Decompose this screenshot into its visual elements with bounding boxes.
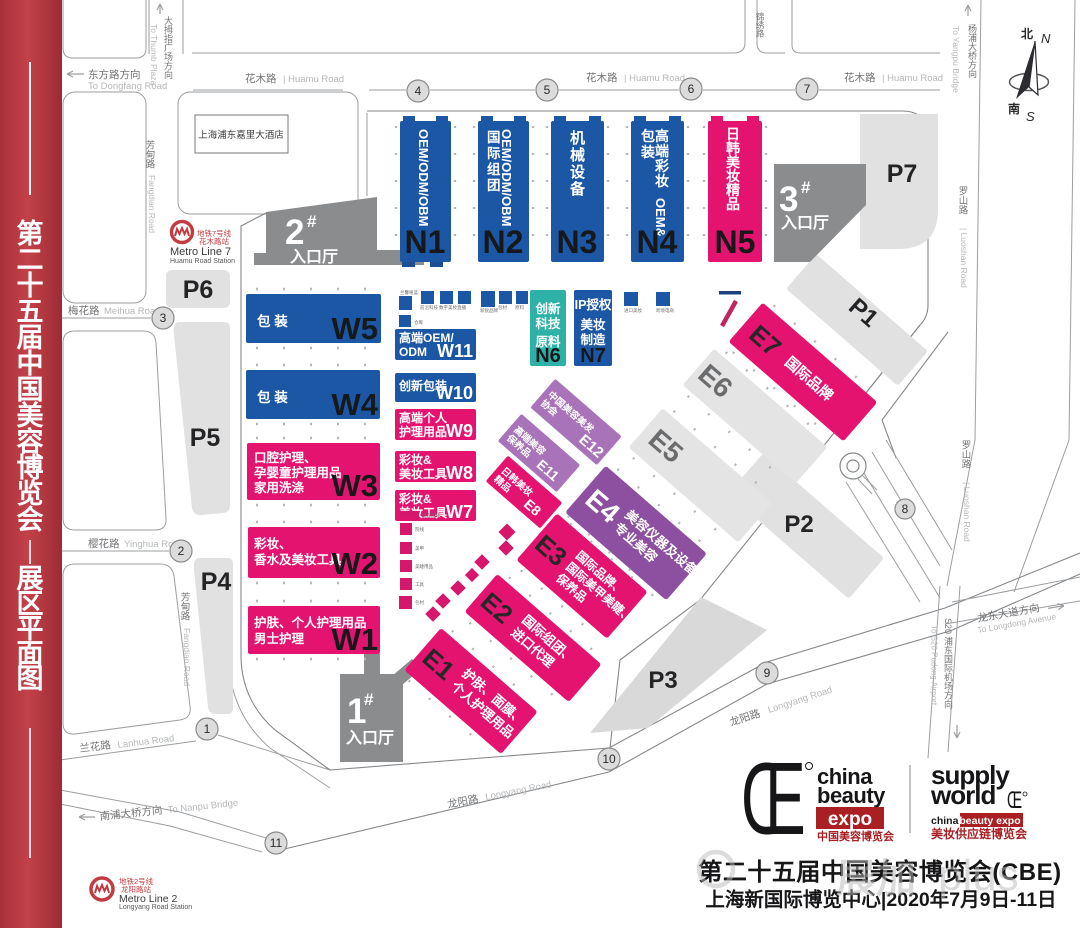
svg-text:W9: W9 xyxy=(446,421,473,441)
svg-text:#: # xyxy=(364,690,374,709)
svg-text:包 装: 包 装 xyxy=(257,313,288,329)
svg-text:美妆工具: 美妆工具 xyxy=(399,466,447,481)
svg-text:高端彩妆: 高端彩妆 xyxy=(654,128,669,189)
svg-text:东方路方向: 东方路方向 xyxy=(88,68,141,81)
svg-text:9: 9 xyxy=(764,666,771,680)
svg-text:护理用品: 护理用品 xyxy=(399,424,447,439)
svg-text:芳甸路: 芳甸路 xyxy=(144,139,156,169)
svg-text:家用洗涤: 家用洗涤 xyxy=(254,480,305,495)
svg-text:美妆供应链博览会: 美妆供应链博览会 xyxy=(931,826,1028,841)
svg-text:N3: N3 xyxy=(557,224,598,260)
svg-text:入口厅: 入口厅 xyxy=(290,248,338,266)
svg-text:口腔护理、: 口腔护理、 xyxy=(254,450,317,465)
svg-text:To S20 Pudong Airport: To S20 Pudong Airport xyxy=(930,625,939,706)
svg-text:创新: 创新 xyxy=(534,301,561,316)
svg-text:入口厅: 入口厅 xyxy=(346,729,394,747)
svg-text:N6: N6 xyxy=(535,345,561,367)
svg-text:原料: 原料 xyxy=(515,304,524,311)
svg-text:3: 3 xyxy=(779,180,798,219)
svg-text:6: 6 xyxy=(688,82,695,96)
svg-text:expo: expo xyxy=(828,809,872,830)
svg-text:IP授权: IP授权 xyxy=(575,297,612,312)
svg-text:美妆: 美妆 xyxy=(580,317,606,332)
svg-text:包材: 包材 xyxy=(498,304,507,310)
svg-text:N1: N1 xyxy=(405,224,446,260)
svg-text:美睫用品: 美睫用品 xyxy=(415,563,433,570)
svg-text:5: 5 xyxy=(544,83,551,97)
svg-text:兰馨格蓝: 兰馨格蓝 xyxy=(400,289,418,296)
svg-text:P2: P2 xyxy=(784,511,813,538)
svg-text:W7: W7 xyxy=(446,502,473,522)
svg-text:花木路站: 花木路站 xyxy=(199,236,229,246)
svg-text:W8: W8 xyxy=(446,463,473,483)
svg-text:彩妆&: 彩妆& xyxy=(398,491,432,506)
svg-text:P6: P6 xyxy=(183,276,214,304)
svg-text:孕婴童护理用品: 孕婴童护理用品 xyxy=(254,465,342,480)
svg-text:彩妆、: 彩妆、 xyxy=(253,536,292,551)
svg-text:包 装: 包 装 xyxy=(257,389,288,405)
svg-text:| Luoshan Road: | Luoshan Road xyxy=(962,482,972,542)
svg-text:Metro Line 7: Metro Line 7 xyxy=(170,246,231,258)
svg-text:W5: W5 xyxy=(332,311,379,346)
svg-text:北: 北 xyxy=(1021,26,1033,41)
svg-text:花木路: 花木路 xyxy=(586,71,618,84)
svg-text:美甲: 美甲 xyxy=(415,545,424,552)
svg-text:1: 1 xyxy=(204,722,211,736)
svg-text:world: world xyxy=(930,780,995,810)
svg-text:罗山路: 罗山路 xyxy=(960,440,972,469)
svg-text:| Huamu Road: | Huamu Road xyxy=(882,73,943,84)
svg-text:N: N xyxy=(1041,31,1051,46)
svg-text:OEM/ODM/OBM: OEM/ODM/OBM xyxy=(416,129,431,227)
svg-text:beauty expo: beauty expo xyxy=(959,815,1020,827)
svg-text:男士护理: 男士护理 xyxy=(254,631,305,646)
svg-text:P4: P4 xyxy=(201,568,232,596)
svg-text:N7: N7 xyxy=(580,345,606,367)
svg-text:Longyang Road Station: Longyang Road Station xyxy=(119,904,192,911)
svg-text:罗山路: 罗山路 xyxy=(957,186,969,215)
svg-text:4: 4 xyxy=(415,84,422,98)
svg-text:展区平面图: 展区平面图 xyxy=(17,564,44,694)
svg-text:进口美妆: 进口美妆 xyxy=(624,307,642,314)
svg-text:直播: 直播 xyxy=(457,304,466,311)
svg-text:香水及美妆工具: 香水及美妆工具 xyxy=(253,552,342,567)
svg-text:锦绣路: 锦绣路 xyxy=(755,11,765,38)
svg-text:展加: 展加 xyxy=(836,857,916,901)
svg-text:仓库: 仓库 xyxy=(414,319,423,326)
svg-text:花木路: 花木路 xyxy=(844,71,876,84)
svg-text:Fangdian Road: Fangdian Road xyxy=(182,628,192,686)
svg-text:芳甸路: 芳甸路 xyxy=(179,591,191,621)
svg-text:11: 11 xyxy=(270,836,283,850)
svg-text:跨境电商: 跨境电商 xyxy=(656,307,674,314)
svg-text:3: 3 xyxy=(160,311,167,325)
svg-text:N5: N5 xyxy=(715,224,756,260)
svg-text:第二十五届中国美容博览会: 第二十五届中国美容博览会 xyxy=(17,218,44,535)
svg-text:梅花路: 梅花路 xyxy=(68,304,100,317)
svg-text:beauty: beauty xyxy=(817,783,886,808)
svg-text:2: 2 xyxy=(285,213,304,252)
svg-text:南: 南 xyxy=(1008,101,1020,116)
svg-text:S: S xyxy=(1026,109,1035,124)
svg-text:S20 浦东国际机场方向: S20 浦东国际机场方向 xyxy=(943,618,953,709)
svg-text:china: china xyxy=(931,815,959,827)
svg-text:花木路: 花木路 xyxy=(245,72,277,85)
svg-text:前沿科技: 前沿科技 xyxy=(420,304,438,311)
svg-text:#: # xyxy=(801,178,811,197)
svg-text:To Yangpu Bridge: To Yangpu Bridge xyxy=(951,26,961,93)
svg-text:樱花路: 樱花路 xyxy=(88,537,120,550)
svg-text:机械设备: 机械设备 xyxy=(569,129,586,198)
svg-text:包装: 包装 xyxy=(640,128,656,160)
svg-text:OEM/ODM/OBM: OEM/ODM/OBM xyxy=(499,129,514,227)
svg-text:#: # xyxy=(307,212,317,231)
svg-text:| Luoshan Road: | Luoshan Road xyxy=(959,228,969,288)
svg-text:| Huamu Road: | Huamu Road xyxy=(624,73,685,84)
svg-text:数字美妆: 数字美妆 xyxy=(439,304,457,311)
svg-text:P3: P3 xyxy=(648,667,677,694)
svg-text:ODM: ODM xyxy=(399,345,427,359)
svg-text:Fangdian Road: Fangdian Road xyxy=(147,175,157,233)
svg-text:新锐品牌: 新锐品牌 xyxy=(480,307,498,314)
svg-text:8: 8 xyxy=(902,502,909,516)
svg-text:N2: N2 xyxy=(483,224,524,260)
svg-text:7: 7 xyxy=(804,82,811,96)
svg-text:W3: W3 xyxy=(332,468,379,503)
svg-text:中国美容博览会: 中国美容博览会 xyxy=(817,829,895,843)
svg-text:Huamu Road Station: Huamu Road Station xyxy=(170,258,235,265)
svg-text:高端个人: 高端个人 xyxy=(399,410,448,425)
svg-text:彩妆&: 彩妆& xyxy=(398,452,432,467)
svg-text:国际组团: 国际组团 xyxy=(487,130,501,193)
svg-text:大拇指广场方向: 大拇指广场方向 xyxy=(163,15,173,79)
svg-text:To Thumb Plaza: To Thumb Plaza xyxy=(149,24,159,86)
svg-text:10: 10 xyxy=(602,752,616,766)
svg-text:plus: plus xyxy=(938,851,1019,900)
svg-text:W11: W11 xyxy=(437,341,473,361)
svg-text:N4: N4 xyxy=(637,224,678,260)
svg-text:Œ: Œ xyxy=(741,742,806,857)
svg-text:日韩美妆精品: 日韩美妆精品 xyxy=(726,126,741,212)
svg-text:科技: 科技 xyxy=(535,316,561,331)
svg-text:W2: W2 xyxy=(332,546,379,581)
svg-text:入口厅: 入口厅 xyxy=(781,214,829,232)
svg-text:杨浦大桥方向: 杨浦大桥方向 xyxy=(967,23,977,78)
svg-text:W1: W1 xyxy=(332,622,379,657)
svg-text:W4: W4 xyxy=(332,387,379,422)
svg-text:院线: 院线 xyxy=(415,526,424,533)
svg-text:P7: P7 xyxy=(887,160,918,188)
svg-text:Œ: Œ xyxy=(1007,788,1022,814)
svg-text:| Huamu Road: | Huamu Road xyxy=(283,74,344,85)
svg-text:美容院线: 美容院线 xyxy=(422,512,440,519)
svg-text:W10: W10 xyxy=(436,383,473,403)
svg-text:2: 2 xyxy=(178,544,185,558)
svg-text:包材: 包材 xyxy=(415,599,424,605)
svg-text:P5: P5 xyxy=(190,424,221,452)
svg-text:上海浦东嘉里大酒店: 上海浦东嘉里大酒店 xyxy=(198,129,284,141)
